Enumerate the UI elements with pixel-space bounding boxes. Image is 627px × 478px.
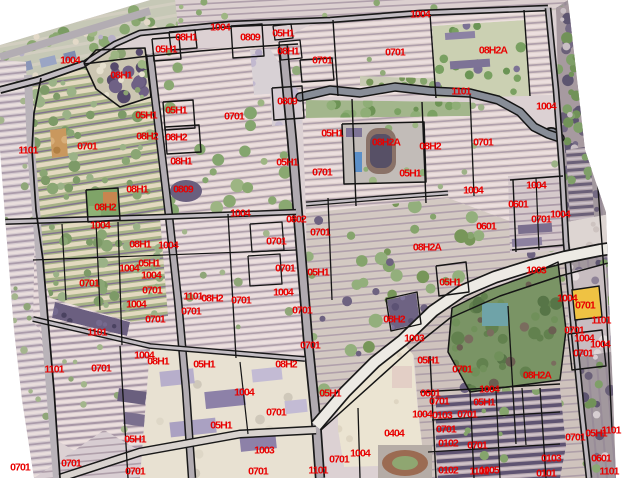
svg-text:0809: 0809: [240, 32, 261, 44]
svg-text:0103: 0103: [432, 410, 453, 422]
svg-text:0701: 0701: [457, 409, 478, 421]
svg-text:0701: 0701: [575, 300, 596, 312]
svg-text:08H2A: 08H2A: [479, 45, 509, 57]
svg-text:0701: 0701: [142, 285, 163, 297]
svg-text:0701: 0701: [300, 340, 321, 352]
svg-text:08H1: 08H1: [175, 32, 198, 44]
svg-text:08H1: 08H1: [147, 356, 170, 368]
svg-text:0701: 0701: [467, 440, 488, 452]
svg-text:05H1: 05H1: [210, 420, 233, 432]
svg-text:0701: 0701: [248, 466, 269, 478]
svg-text:1003: 1003: [254, 445, 275, 457]
svg-text:05H1: 05H1: [193, 359, 216, 371]
svg-text:0701: 0701: [181, 306, 202, 318]
svg-text:05H1: 05H1: [473, 397, 496, 409]
svg-text:1004: 1004: [60, 55, 81, 67]
svg-text:1101: 1101: [308, 465, 328, 477]
svg-text:05H1: 05H1: [138, 258, 161, 270]
svg-text:1004: 1004: [126, 299, 147, 311]
svg-text:08H2: 08H2: [419, 141, 442, 153]
svg-text:08H2: 08H2: [165, 132, 188, 144]
svg-text:1004: 1004: [410, 9, 431, 21]
svg-text:0701: 0701: [310, 227, 331, 239]
svg-text:0809: 0809: [173, 184, 194, 196]
svg-text:05H1: 05H1: [272, 28, 295, 40]
svg-text:08H1: 08H1: [170, 156, 193, 168]
svg-text:1101: 1101: [599, 466, 619, 478]
svg-text:08H2: 08H2: [94, 202, 117, 214]
svg-text:05H1: 05H1: [276, 157, 299, 169]
svg-text:1004: 1004: [141, 270, 162, 282]
svg-text:0701: 0701: [565, 432, 586, 444]
svg-text:0701: 0701: [531, 214, 552, 226]
svg-text:1004: 1004: [90, 220, 111, 232]
svg-text:1004: 1004: [158, 240, 179, 252]
svg-text:1101: 1101: [451, 86, 471, 98]
svg-text:08H2A: 08H2A: [523, 370, 553, 382]
svg-text:0701: 0701: [312, 55, 333, 67]
svg-text:05H1: 05H1: [124, 434, 147, 446]
svg-text:1101: 1101: [18, 145, 38, 157]
svg-text:08H1: 08H1: [126, 184, 149, 196]
svg-text:05H1: 05H1: [439, 277, 462, 289]
svg-text:0404: 0404: [384, 428, 405, 440]
svg-text:08H2: 08H2: [136, 131, 159, 143]
svg-text:0103: 0103: [541, 453, 562, 465]
svg-text:1004: 1004: [479, 384, 500, 396]
svg-text:1004: 1004: [412, 409, 433, 421]
svg-text:0802: 0802: [286, 214, 307, 226]
svg-text:1101: 1101: [601, 425, 621, 437]
svg-text:05H1: 05H1: [135, 110, 158, 122]
svg-text:08H1: 08H1: [129, 239, 152, 251]
svg-text:0701: 0701: [275, 263, 296, 275]
svg-text:08H2: 08H2: [383, 314, 406, 326]
svg-text:0701: 0701: [266, 407, 287, 419]
svg-text:0701: 0701: [473, 137, 494, 149]
svg-text:1101: 1101: [469, 466, 489, 478]
svg-text:1004: 1004: [550, 209, 571, 221]
svg-text:1004: 1004: [119, 263, 140, 275]
svg-text:1101: 1101: [87, 327, 107, 339]
svg-text:05H1: 05H1: [321, 128, 344, 140]
svg-text:1004: 1004: [210, 22, 231, 34]
svg-text:08H2A: 08H2A: [372, 137, 402, 149]
svg-text:0701: 0701: [452, 364, 473, 376]
svg-text:1004: 1004: [234, 387, 255, 399]
svg-text:0102: 0102: [438, 465, 459, 477]
svg-text:08H2A: 08H2A: [413, 242, 443, 254]
svg-text:0701: 0701: [231, 295, 252, 307]
svg-text:1101: 1101: [44, 364, 64, 376]
svg-text:0701: 0701: [77, 141, 98, 153]
svg-text:1004: 1004: [526, 180, 547, 192]
svg-text:1004: 1004: [350, 448, 371, 460]
svg-text:1003: 1003: [404, 333, 425, 345]
svg-text:08H1: 08H1: [110, 70, 133, 82]
svg-text:0701: 0701: [61, 458, 82, 470]
svg-text:1101: 1101: [591, 315, 611, 327]
svg-text:08H2: 08H2: [275, 359, 298, 371]
svg-text:1004: 1004: [230, 208, 251, 220]
svg-text:0701: 0701: [329, 454, 350, 466]
svg-text:0701: 0701: [312, 167, 333, 179]
svg-text:0701: 0701: [266, 236, 287, 248]
svg-text:0701: 0701: [145, 314, 166, 326]
svg-text:0701: 0701: [91, 363, 112, 375]
svg-text:0701: 0701: [79, 278, 100, 290]
svg-text:1004: 1004: [463, 185, 484, 197]
svg-text:1004: 1004: [590, 339, 611, 351]
svg-text:0701: 0701: [573, 348, 594, 360]
svg-text:1003: 1003: [526, 265, 547, 277]
svg-text:0809: 0809: [277, 96, 298, 108]
svg-text:05H1: 05H1: [165, 105, 188, 117]
svg-text:0701: 0701: [385, 47, 406, 59]
svg-text:0701: 0701: [125, 466, 146, 478]
svg-text:0701: 0701: [292, 305, 313, 317]
svg-text:05H1: 05H1: [307, 267, 330, 279]
svg-text:0102: 0102: [438, 438, 459, 450]
svg-text:1004: 1004: [536, 101, 557, 113]
svg-text:0701: 0701: [436, 424, 457, 436]
svg-text:1004: 1004: [273, 287, 294, 299]
svg-text:0701: 0701: [429, 396, 450, 408]
svg-text:08H2: 08H2: [201, 293, 224, 305]
svg-text:0601: 0601: [476, 221, 497, 233]
svg-text:0101: 0101: [536, 468, 557, 478]
svg-text:05H1: 05H1: [319, 388, 342, 400]
svg-text:0701: 0701: [224, 111, 245, 123]
svg-text:0701: 0701: [10, 462, 31, 474]
svg-text:0601: 0601: [508, 199, 529, 211]
svg-text:05H1: 05H1: [417, 355, 440, 367]
svg-text:08H1: 08H1: [277, 46, 300, 58]
svg-text:05H1: 05H1: [155, 44, 178, 56]
svg-text:05H1: 05H1: [399, 168, 422, 180]
svg-text:0601: 0601: [591, 453, 612, 465]
